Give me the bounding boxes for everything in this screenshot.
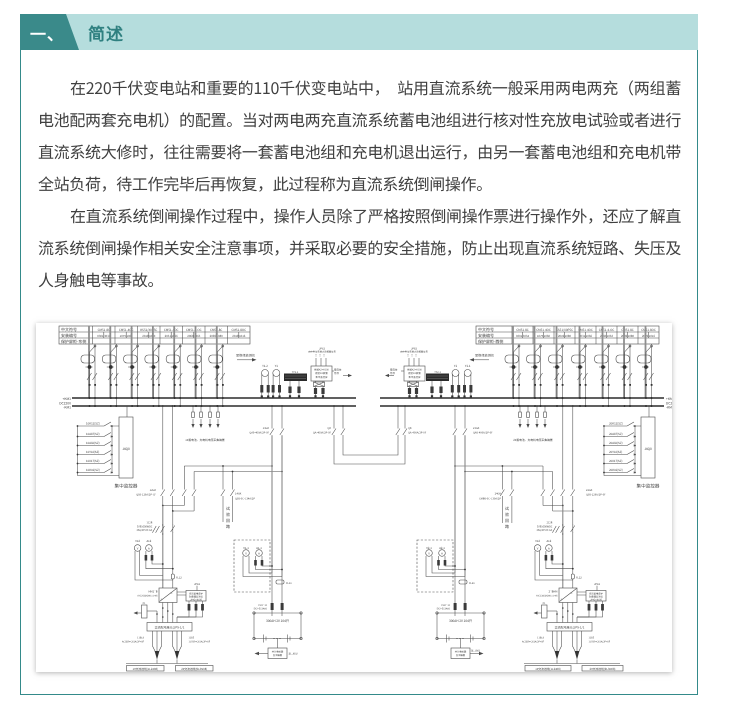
svg-text:1C939+C61A/2P+0F: 1C939+C61A/2P+0F <box>589 639 611 643</box>
svg-text:1#交流进线(1L2408): 1#交流进线(1L2408) <box>535 667 561 671</box>
svg-text:AYC253(M2N111+45: AYC253(M2N111+45 <box>137 594 158 598</box>
svg-text:~: ~ <box>161 597 164 603</box>
svg-text:FL11: FL11 <box>286 581 292 585</box>
svg-text:CM51-8OC: CM51-8OC <box>232 328 247 332</box>
svg-text:A12: A12 <box>146 539 151 543</box>
svg-text:JP42: JP42 <box>194 582 200 586</box>
svg-text:5Y2=513A#2: 5Y2=513A#2 <box>437 607 451 611</box>
svg-text:由中央信号屏火灾报警信号: 由中央信号屏火灾报警信号 <box>308 350 336 354</box>
svg-text:CMB9-0C-C30A/2P: CMB9-0C-C30A/2P <box>479 497 501 501</box>
svg-text:JP42: JP42 <box>594 582 600 586</box>
svg-text:监测装置: 监测装置 <box>456 653 466 657</box>
svg-text:Y2.1: Y2.1 <box>464 364 471 368</box>
svg-text:300AH 2V 104只: 300AH 2V 104只 <box>449 618 472 623</box>
svg-text:20X17(SZ): 20X17(SZ) <box>609 459 623 463</box>
svg-text:V: V <box>137 546 139 550</box>
svg-text:至绝缘监测仪: 至绝缘监测仪 <box>475 353 495 358</box>
svg-text:10K02(SZ): 10K02(SZ) <box>86 468 100 472</box>
svg-text:20K02(SZ): 20K02(SZ) <box>609 468 623 472</box>
svg-text:FL21: FL21 <box>469 581 475 585</box>
svg-text:2#蓄电池、充电机电压采集装置: 2#蓄电池、充电机电压采集装置 <box>513 438 553 442</box>
svg-text:=: = <box>171 590 173 595</box>
svg-text:CM51-4OC: CM51-4OC <box>164 328 179 332</box>
svg-text:QA-400A/2P-0F: QA-400A/2P-0F <box>313 431 332 435</box>
svg-text:12GK: 12GK <box>150 488 157 492</box>
svg-text:A: A <box>258 551 260 555</box>
svg-text:25A/2P-0F-G3: 25A/2P-0F-G3 <box>136 528 152 532</box>
svg-text:QK: QK <box>327 426 331 430</box>
svg-text:由中央信号屏火灾报警信号: 由中央信号屏火灾报警信号 <box>400 350 428 354</box>
svg-text:10A60(SZ): 10A60(SZ) <box>86 441 100 445</box>
svg-text:AYC2300(M2N111+45: AYC2300(M2N111+45 <box>536 594 558 598</box>
svg-text:KS51/X0P5C: KS51/X0P5C <box>556 328 573 332</box>
svg-text:保护屏柜-东侧: 保护屏柜-东侧 <box>61 339 86 345</box>
svg-text:-KM1: -KM1 <box>63 405 71 410</box>
svg-text:23GK: 23GK <box>473 426 480 430</box>
svg-text:集中监控器: 集中监控器 <box>637 484 660 490</box>
svg-text:A: A <box>548 546 550 550</box>
svg-text:25A/2P-0F-G3: 25A/2P-0F-G3 <box>536 528 552 532</box>
svg-text:V: V <box>428 551 430 555</box>
svg-text:~: ~ <box>561 597 564 603</box>
svg-text:24GK: 24GK <box>495 492 502 496</box>
svg-text:QA9-400A/2P-0F: QA9-400A/2P-0F <box>473 431 493 435</box>
svg-text:CM51-8C: CM51-8C <box>516 328 528 332</box>
svg-text:22GK: 22GK <box>586 488 593 492</box>
svg-text:V: V <box>537 546 539 550</box>
svg-text:保护屏柜-西侧: 保护屏柜-西侧 <box>478 339 503 345</box>
svg-text:1#交流进线(1L2408): 1#交流进线(1L2408) <box>133 667 159 671</box>
svg-text:KS51/X0P5C: KS51/X0P5C <box>140 328 157 332</box>
svg-text:CM51-4OC: CM51-4OC <box>578 328 593 332</box>
svg-text:监测装置: 监测装置 <box>273 653 283 657</box>
svg-text:13GK: 13GK <box>263 426 270 430</box>
svg-text:信号: 信号 <box>390 371 396 375</box>
svg-text:ACSB9+C61A/2P+0F: ACSB9+C61A/2P+0F <box>522 639 545 643</box>
svg-text:ACSB9+C61A/2P+0F: ACSB9+C61A/2P+0F <box>122 639 145 643</box>
svg-text:集中监控器: 集中监控器 <box>115 484 138 490</box>
svg-text:QS9-125A/2P-0F: QS9-125A/2P-0F <box>586 493 606 497</box>
svg-text:CM51-4-OC: CM51-4-OC <box>599 328 615 332</box>
svg-text:V1.1: V1.1 <box>243 546 249 550</box>
svg-text:F1: F1 <box>143 601 146 605</box>
svg-text:5Y2=513A#2: 5Y2=513A#2 <box>254 607 268 611</box>
svg-text:CM51-8C: CM51-8C <box>98 328 110 332</box>
svg-text:CM51-4-OC: CM51-4-OC <box>186 328 202 332</box>
svg-text:F1: F1 <box>543 601 546 605</box>
svg-text:10Y02(SZ): 10Y02(SZ) <box>86 450 99 454</box>
svg-text:QK: QK <box>408 426 412 430</box>
svg-text:试验回路: 试验回路 <box>226 506 230 530</box>
svg-text:V2.1: V2.1 <box>426 546 432 550</box>
svg-text:=: = <box>571 590 573 595</box>
svg-text:交流配电单元(JP9-1/1: 交流配电单元(JP9-1/1 <box>155 626 185 630</box>
svg-text:1C939+C61A/2P+0F: 1C939+C61A/2P+0F <box>189 639 211 643</box>
svg-text:20A60(SZ): 20A60(SZ) <box>609 441 623 445</box>
svg-text:Y1.2: Y1.2 <box>261 364 268 368</box>
svg-text:信号: 信号 <box>334 371 340 375</box>
svg-text:TY2.1: TY2.1 <box>434 370 441 374</box>
svg-text:V12: V12 <box>535 539 540 543</box>
svg-text:V12: V12 <box>135 539 140 543</box>
svg-text:A12: A12 <box>546 539 551 543</box>
svg-text:10K12(SZ): 10K12(SZ) <box>86 422 100 426</box>
svg-text:J4Q0: J4Q0 <box>644 446 652 451</box>
svg-text:CM51-4OC: CM51-4OC <box>536 328 551 332</box>
svg-text:2#交流进线(9L3N08): 2#交流进线(9L3N08) <box>590 667 616 671</box>
svg-text:10A87(SZ): 10A87(SZ) <box>86 432 100 436</box>
svg-text:20Y02(SZ): 20Y02(SZ) <box>609 450 622 454</box>
svg-text:J4Q0: J4Q0 <box>122 446 130 451</box>
svg-text:QS9-0C-C34A/2P: QS9-0C-C34A/2P <box>235 497 255 501</box>
svg-text:Y1: Y1 <box>274 364 279 368</box>
svg-text:CM51-8OC: CM51-8OC <box>641 328 656 332</box>
svg-text:20K12(SZ): 20K12(SZ) <box>609 422 623 426</box>
svg-text:JP42+B100: JP42+B100 <box>190 598 203 602</box>
svg-text:TY1.1: TY1.1 <box>292 370 299 374</box>
svg-text:A: A <box>148 546 150 550</box>
svg-text:FL12: FL12 <box>176 576 182 580</box>
svg-text:试验回路: 试验回路 <box>505 506 509 530</box>
svg-text:V: V <box>245 551 247 555</box>
svg-text:FL22: FL22 <box>576 576 582 580</box>
svg-text:JP42+B100: JP42+B100 <box>590 598 603 602</box>
svg-text:QA-400A/2P-0F: QA-400A/2P-0F <box>408 431 427 435</box>
svg-text:20A87(SZ): 20A87(SZ) <box>609 432 623 436</box>
svg-text:14GK: 14GK <box>235 492 242 496</box>
svg-text:至_JB02: 至_JB02 <box>289 652 299 656</box>
svg-text:1#蓄电池、充电机电压采集装置: 1#蓄电池、充电机电压采集装置 <box>185 438 225 442</box>
svg-text:QA9-400A/2P-0F: QA9-400A/2P-0F <box>249 431 269 435</box>
svg-text:2#交流进线(9L3N08): 2#交流进线(9L3N08) <box>181 667 207 671</box>
svg-text:A2.1: A2.1 <box>439 546 445 550</box>
svg-text:10X17(SZ): 10X17(SZ) <box>86 459 100 463</box>
svg-text:A1.1: A1.1 <box>256 546 262 550</box>
svg-text:至_JB02: 至_JB02 <box>471 649 481 653</box>
svg-text:集中监控屏: 集中监控屏 <box>316 375 329 379</box>
svg-text:300AH 2V 104只: 300AH 2V 104只 <box>266 618 289 623</box>
svg-text:交流配电单元(JP9-1/1: 交流配电单元(JP9-1/1 <box>555 626 585 630</box>
svg-text:集中监控屏: 集中监控屏 <box>409 375 422 379</box>
svg-text:至绝缘监测仪: 至绝缘监测仪 <box>236 353 256 358</box>
svg-text:Y2: Y2 <box>453 364 458 368</box>
svg-text:QS9-125A/2P-CF: QS9-125A/2P-CF <box>136 493 156 497</box>
svg-text:A: A <box>441 551 443 555</box>
svg-text:-KM2: -KM2 <box>666 405 672 410</box>
